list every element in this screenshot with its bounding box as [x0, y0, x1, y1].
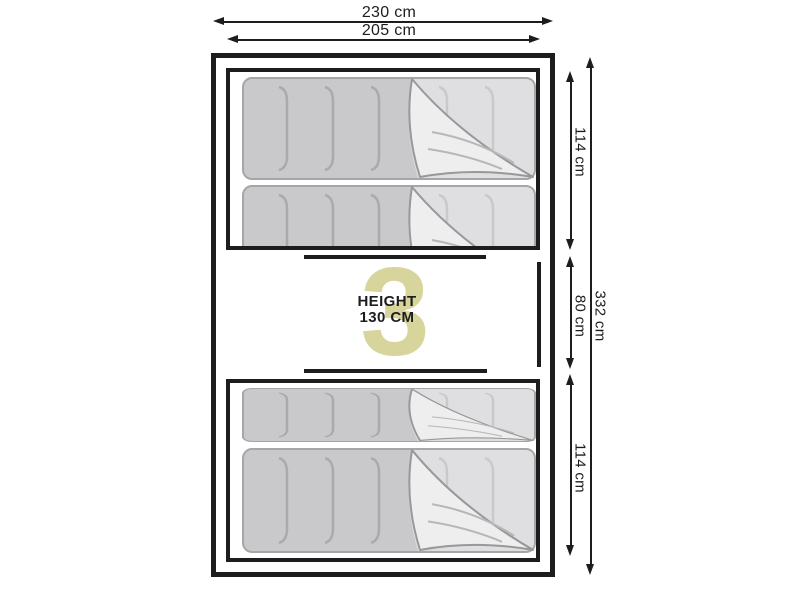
sleeping-bag-icon: [242, 388, 536, 442]
tent-floorplan-diagram: 230 cm 205 cm 3 HEIGHT 130 CM 114 cm 80 …: [0, 0, 800, 600]
sleeping-bag-icon: [242, 185, 536, 250]
sleeping-bag-icon: [242, 448, 536, 553]
sleeping-bag-icon: [242, 77, 536, 180]
sleeping-compartment-bottom: [226, 379, 540, 562]
height-label-line1: HEIGHT: [307, 294, 467, 310]
sleeping-compartment-top: [226, 68, 540, 250]
height-total-label: 332 cm: [592, 291, 609, 342]
height-label-line2: 130 CM: [307, 310, 467, 326]
height-label: HEIGHT 130 CM: [307, 294, 467, 326]
width-inner-arrow: [227, 35, 540, 44]
inner-wall-line: [537, 262, 541, 367]
